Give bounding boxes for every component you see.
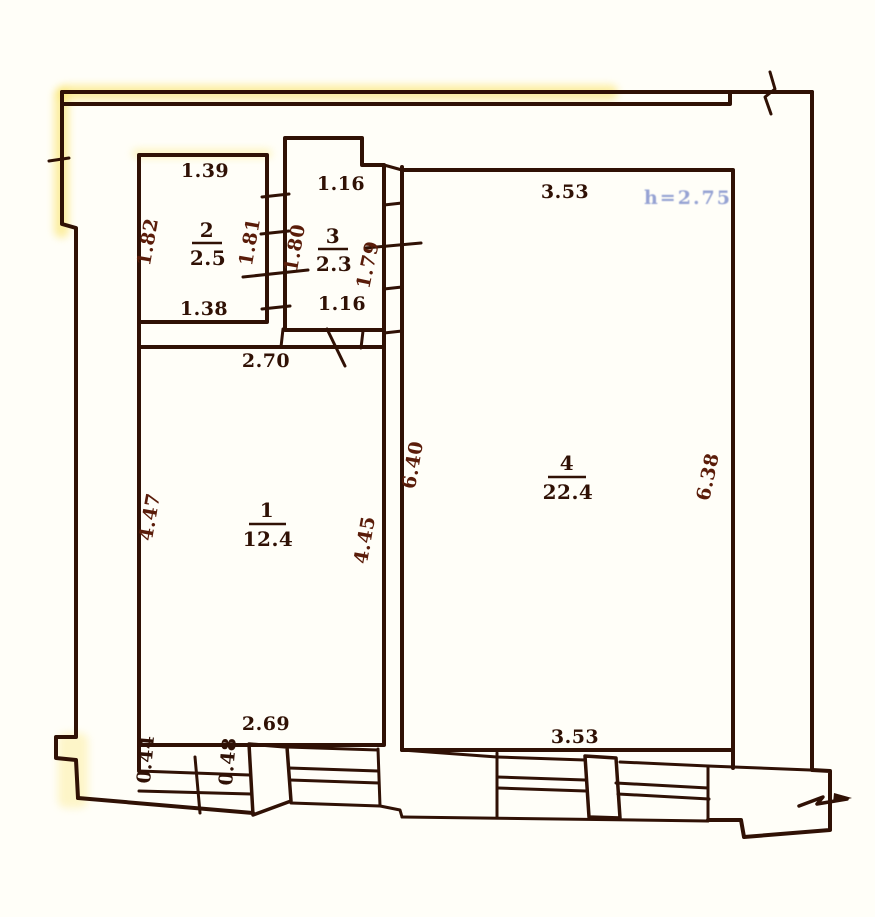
window2-line-mid1 (497, 777, 585, 780)
dim-room4-bottom: 3.53 (551, 726, 599, 748)
room2-area: 2.5 (190, 246, 226, 270)
dim-room2-right: 1.81 (235, 216, 265, 267)
left-wall-tick (49, 158, 69, 161)
window2-line-top (497, 757, 585, 760)
ceiling-height-note: h=2.75 (644, 187, 732, 209)
hatch-room3-room4-c (384, 331, 402, 333)
window-sill-outer (402, 817, 708, 821)
dim-room3-bottom: 1.16 (318, 293, 366, 315)
window1-outer-step (380, 806, 402, 817)
dim-room3-right: 1.79 (352, 239, 384, 291)
dim-room1-bottom: 2.69 (242, 713, 290, 735)
room3-to-room4-step (384, 165, 402, 170)
wall-bottom-left-edge (78, 798, 253, 813)
dim-opening-044: 0.44 (133, 734, 159, 784)
room4-number: 4 (560, 451, 574, 475)
room1-number: 1 (260, 498, 274, 522)
balcony-door-leaf (249, 744, 291, 815)
wall-left-outer (56, 92, 78, 798)
hatch-room3-room4-a (384, 203, 402, 205)
passage-line-lower (139, 791, 251, 794)
dim-room2-top: 1.39 (181, 160, 229, 182)
window-mullion (585, 756, 620, 818)
window1-line-top (287, 747, 378, 750)
window3-line-top (620, 762, 708, 766)
window3-line-mid1 (616, 783, 708, 788)
right-wall-bottom-connector (708, 766, 810, 770)
window1-line-mid1 (289, 768, 378, 771)
window1-line-mid2 (290, 780, 379, 783)
hatch-room3-room4-b (384, 287, 402, 289)
dim-room1-right: 4.45 (350, 514, 380, 565)
door-tick-balcony (195, 757, 200, 813)
room4-area: 22.4 (543, 480, 594, 504)
hatch-room1-top-a (281, 329, 283, 347)
dim-room4-right: 6.38 (692, 451, 724, 503)
window1-line-bottom (291, 803, 380, 806)
window2-line-mid2 (498, 788, 586, 791)
dim-room2-bottom: 1.38 (180, 298, 228, 320)
scanned-floor-plan-sheet: 1.39 1.82 1.81 1.38 2 2.5 1.16 1.80 1.79… (0, 0, 875, 917)
room3-area: 2.3 (316, 252, 352, 276)
room3-number: 3 (326, 224, 340, 248)
window3-line-mid2 (618, 794, 709, 799)
hatch-room1-top-b (361, 331, 363, 348)
window1-post-right (378, 749, 380, 806)
room1-area: 12.4 (243, 527, 294, 551)
dim-room1-top: 2.70 (242, 350, 290, 372)
floor-plan-svg: 1.39 1.82 1.81 1.38 2 2.5 1.16 1.80 1.79… (0, 0, 875, 917)
dim-room3-top: 1.16 (317, 173, 365, 195)
dim-opening-048: 0.48 (215, 736, 241, 786)
dim-room4-top: 3.53 (541, 181, 589, 203)
room2-number: 2 (200, 218, 214, 242)
